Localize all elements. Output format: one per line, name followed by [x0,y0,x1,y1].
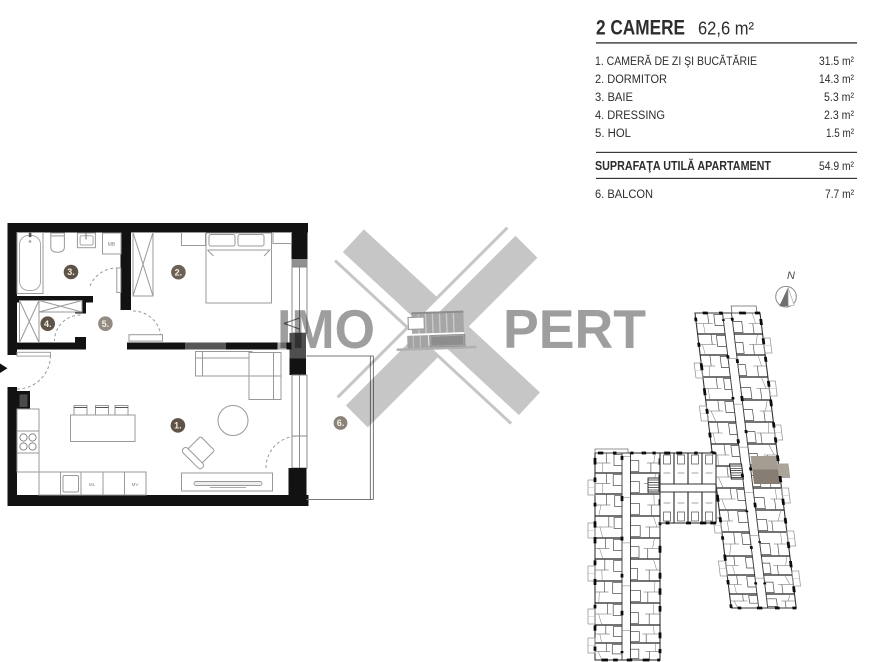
svg-text:2 CAMERE: 2 CAMERE [596,17,685,40]
svg-text:1. CAMERĂ DE ZI ŞI BUCĂTĂRIE: 1. CAMERĂ DE ZI ŞI BUCĂTĂRIE [595,53,757,68]
svg-text:7.7 m²: 7.7 m² [825,187,854,201]
svg-text:ML: ML [89,482,96,487]
svg-text:54.9 m²: 54.9 m² [819,159,854,173]
svg-text:SUPRAFAŢA UTILĂ APARTAMENT: SUPRAFAŢA UTILĂ APARTAMENT [595,158,771,173]
svg-text:5.3 m²: 5.3 m² [824,90,854,104]
svg-text:6. BALCON: 6. BALCON [595,187,653,201]
svg-text:3. BAIE: 3. BAIE [595,90,633,104]
svg-text:5.: 5. [102,319,110,329]
svg-text:PERT: PERT [503,298,646,360]
svg-text:1.5 m²: 1.5 m² [826,126,854,140]
svg-text:MV: MV [132,482,139,487]
svg-text:2. DORMITOR: 2. DORMITOR [595,72,667,86]
svg-text:MB: MB [108,242,116,248]
svg-text:6.: 6. [337,418,345,428]
svg-text:1.: 1. [174,421,182,431]
svg-text:31.5 m²: 31.5 m² [819,54,854,68]
svg-text:2.: 2. [175,267,183,277]
svg-text:14.3 m²: 14.3 m² [819,72,854,86]
svg-text:N: N [787,270,795,282]
svg-text:5. HOL: 5. HOL [595,126,631,140]
svg-text:IMO: IMO [277,298,375,360]
svg-text:2.3 m²: 2.3 m² [824,108,854,122]
svg-text:3.: 3. [67,267,75,277]
svg-text:62,6 m²: 62,6 m² [698,19,754,39]
svg-text:4.: 4. [44,319,52,329]
svg-text:4. DRESSING: 4. DRESSING [595,108,665,122]
